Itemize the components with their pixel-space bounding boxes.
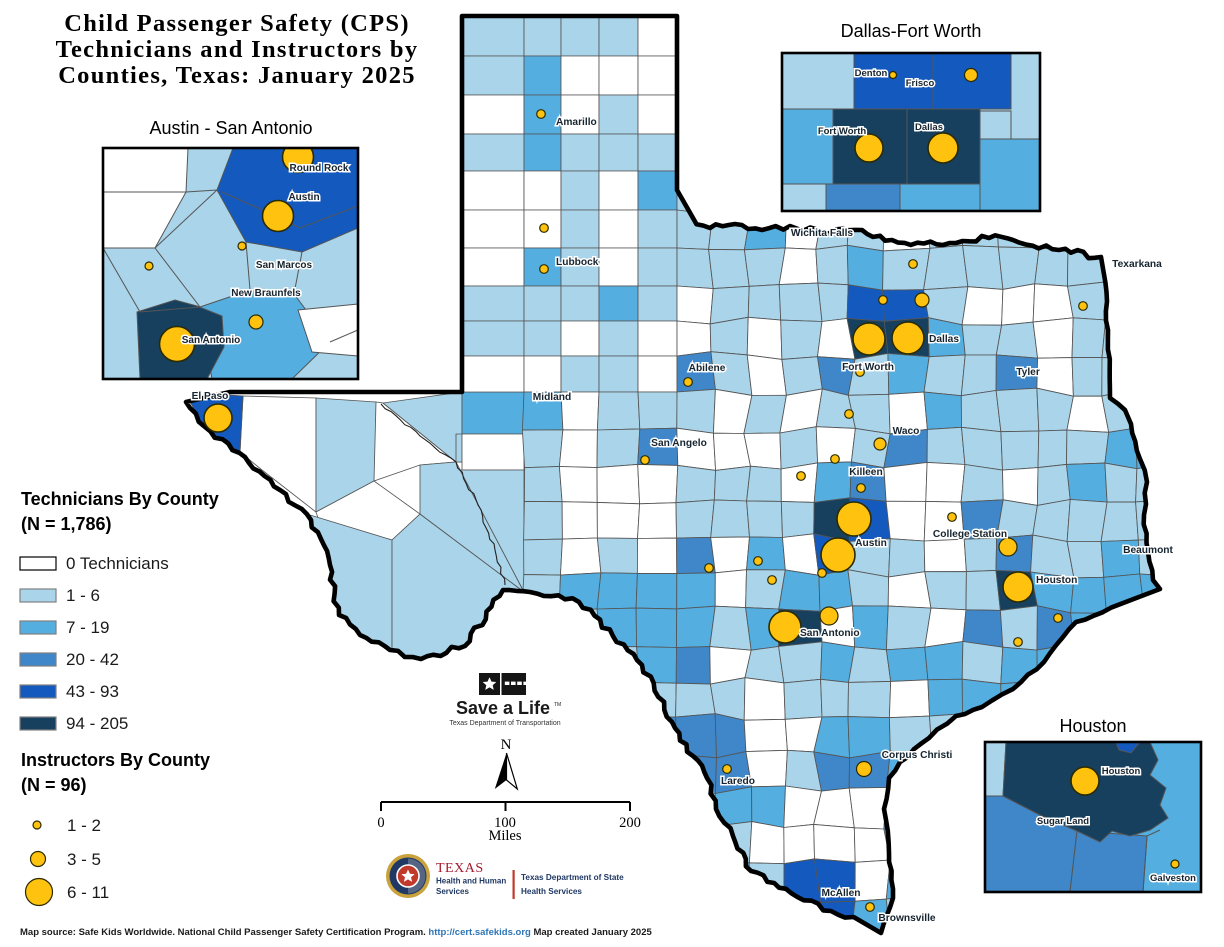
svg-text:Austin - San Antonio: Austin - San Antonio <box>149 118 312 138</box>
svg-text:1 - 2: 1 - 2 <box>67 816 101 835</box>
svg-text:Dallas: Dallas <box>915 122 943 133</box>
svg-text:Texarkana: Texarkana <box>1112 259 1162 270</box>
svg-text:1 - 6: 1 - 6 <box>66 586 100 605</box>
svg-text:Fort Worth: Fort Worth <box>842 362 894 373</box>
svg-text:(N = 1,786): (N = 1,786) <box>21 514 112 534</box>
svg-text:Galveston: Galveston <box>1150 873 1196 884</box>
svg-text:Lubbock: Lubbock <box>556 257 599 268</box>
svg-text:Save a Life: Save a Life <box>456 698 550 718</box>
svg-text:Brownsville: Brownsville <box>878 913 936 924</box>
svg-text:Houston: Houston <box>1102 766 1141 777</box>
svg-text:Beaumont: Beaumont <box>1123 545 1173 556</box>
svg-text:Health Services: Health Services <box>521 887 582 896</box>
svg-text:Dallas-Fort Worth: Dallas-Fort Worth <box>841 21 982 41</box>
svg-text:94 - 205: 94 - 205 <box>66 714 128 733</box>
svg-text:6 - 11: 6 - 11 <box>67 883 109 902</box>
svg-text:Miles: Miles <box>488 828 521 844</box>
svg-text:3 - 5: 3 - 5 <box>67 850 101 869</box>
svg-text:Midland: Midland <box>533 392 571 403</box>
svg-text:20 - 42: 20 - 42 <box>66 650 119 669</box>
svg-text:(N = 96): (N = 96) <box>21 775 87 795</box>
svg-text:El Paso: El Paso <box>192 391 229 402</box>
svg-text:College Station: College Station <box>933 529 1007 540</box>
svg-text:Amarillo: Amarillo <box>556 117 597 128</box>
svg-text:Instructors By County: Instructors By County <box>21 750 210 770</box>
svg-text:Texas Department of State: Texas Department of State <box>521 873 624 882</box>
svg-text:TEXAS: TEXAS <box>436 861 484 876</box>
svg-text:Technicians and Instructors by: Technicians and Instructors by <box>56 36 419 63</box>
svg-text:Technicians By County: Technicians By County <box>21 489 219 509</box>
svg-text:Houston: Houston <box>1059 716 1126 736</box>
svg-text:Waco: Waco <box>893 426 920 437</box>
svg-text:Laredo: Laredo <box>721 776 755 787</box>
svg-text:Austin: Austin <box>855 538 887 549</box>
svg-text:McAllen: McAllen <box>821 888 860 899</box>
svg-text:Killeen: Killeen <box>849 467 882 478</box>
svg-text:0 Technicians: 0 Technicians <box>66 554 169 573</box>
svg-text:San Marcos: San Marcos <box>256 260 313 271</box>
svg-text:San Antonio: San Antonio <box>800 628 860 639</box>
svg-text:Map source: Safe Kids Worldwid: Map source: Safe Kids Worldwide. Nationa… <box>20 927 652 938</box>
svg-text:200: 200 <box>619 815 641 831</box>
svg-text:7 - 19: 7 - 19 <box>66 618 109 637</box>
svg-text:Child Passenger Safety (CPS): Child Passenger Safety (CPS) <box>64 10 410 37</box>
svg-text:Abilene: Abilene <box>689 363 726 374</box>
svg-text:Counties, Texas: January 2025: Counties, Texas: January 2025 <box>58 62 416 89</box>
svg-text:Austin: Austin <box>288 192 319 203</box>
svg-text:Wichita Falls: Wichita Falls <box>791 228 854 239</box>
svg-text:San Angelo: San Angelo <box>651 438 707 449</box>
svg-text:Dallas: Dallas <box>929 334 959 345</box>
svg-text:Health and Human: Health and Human <box>436 877 506 886</box>
svg-text:Texas Department of Transporta: Texas Department of Transportation <box>449 720 560 727</box>
svg-text:Houston: Houston <box>1036 575 1077 586</box>
svg-text:Corpus Christi: Corpus Christi <box>882 750 953 761</box>
svg-text:San Antonio: San Antonio <box>182 335 241 346</box>
svg-text:43 - 93: 43 - 93 <box>66 682 119 701</box>
svg-text:New Braunfels: New Braunfels <box>231 288 301 299</box>
svg-text:Fort Worth: Fort Worth <box>818 126 867 137</box>
svg-text:0: 0 <box>377 815 384 831</box>
svg-text:Round Rock: Round Rock <box>290 163 349 174</box>
svg-text:Tyler: Tyler <box>1016 367 1040 378</box>
svg-text:Denton: Denton <box>855 68 888 79</box>
svg-text:Sugar Land: Sugar Land <box>1037 816 1089 827</box>
svg-text:TM: TM <box>554 702 561 708</box>
svg-text:N: N <box>501 737 512 753</box>
svg-text:Services: Services <box>436 887 469 896</box>
svg-text:Frisco: Frisco <box>906 78 935 89</box>
